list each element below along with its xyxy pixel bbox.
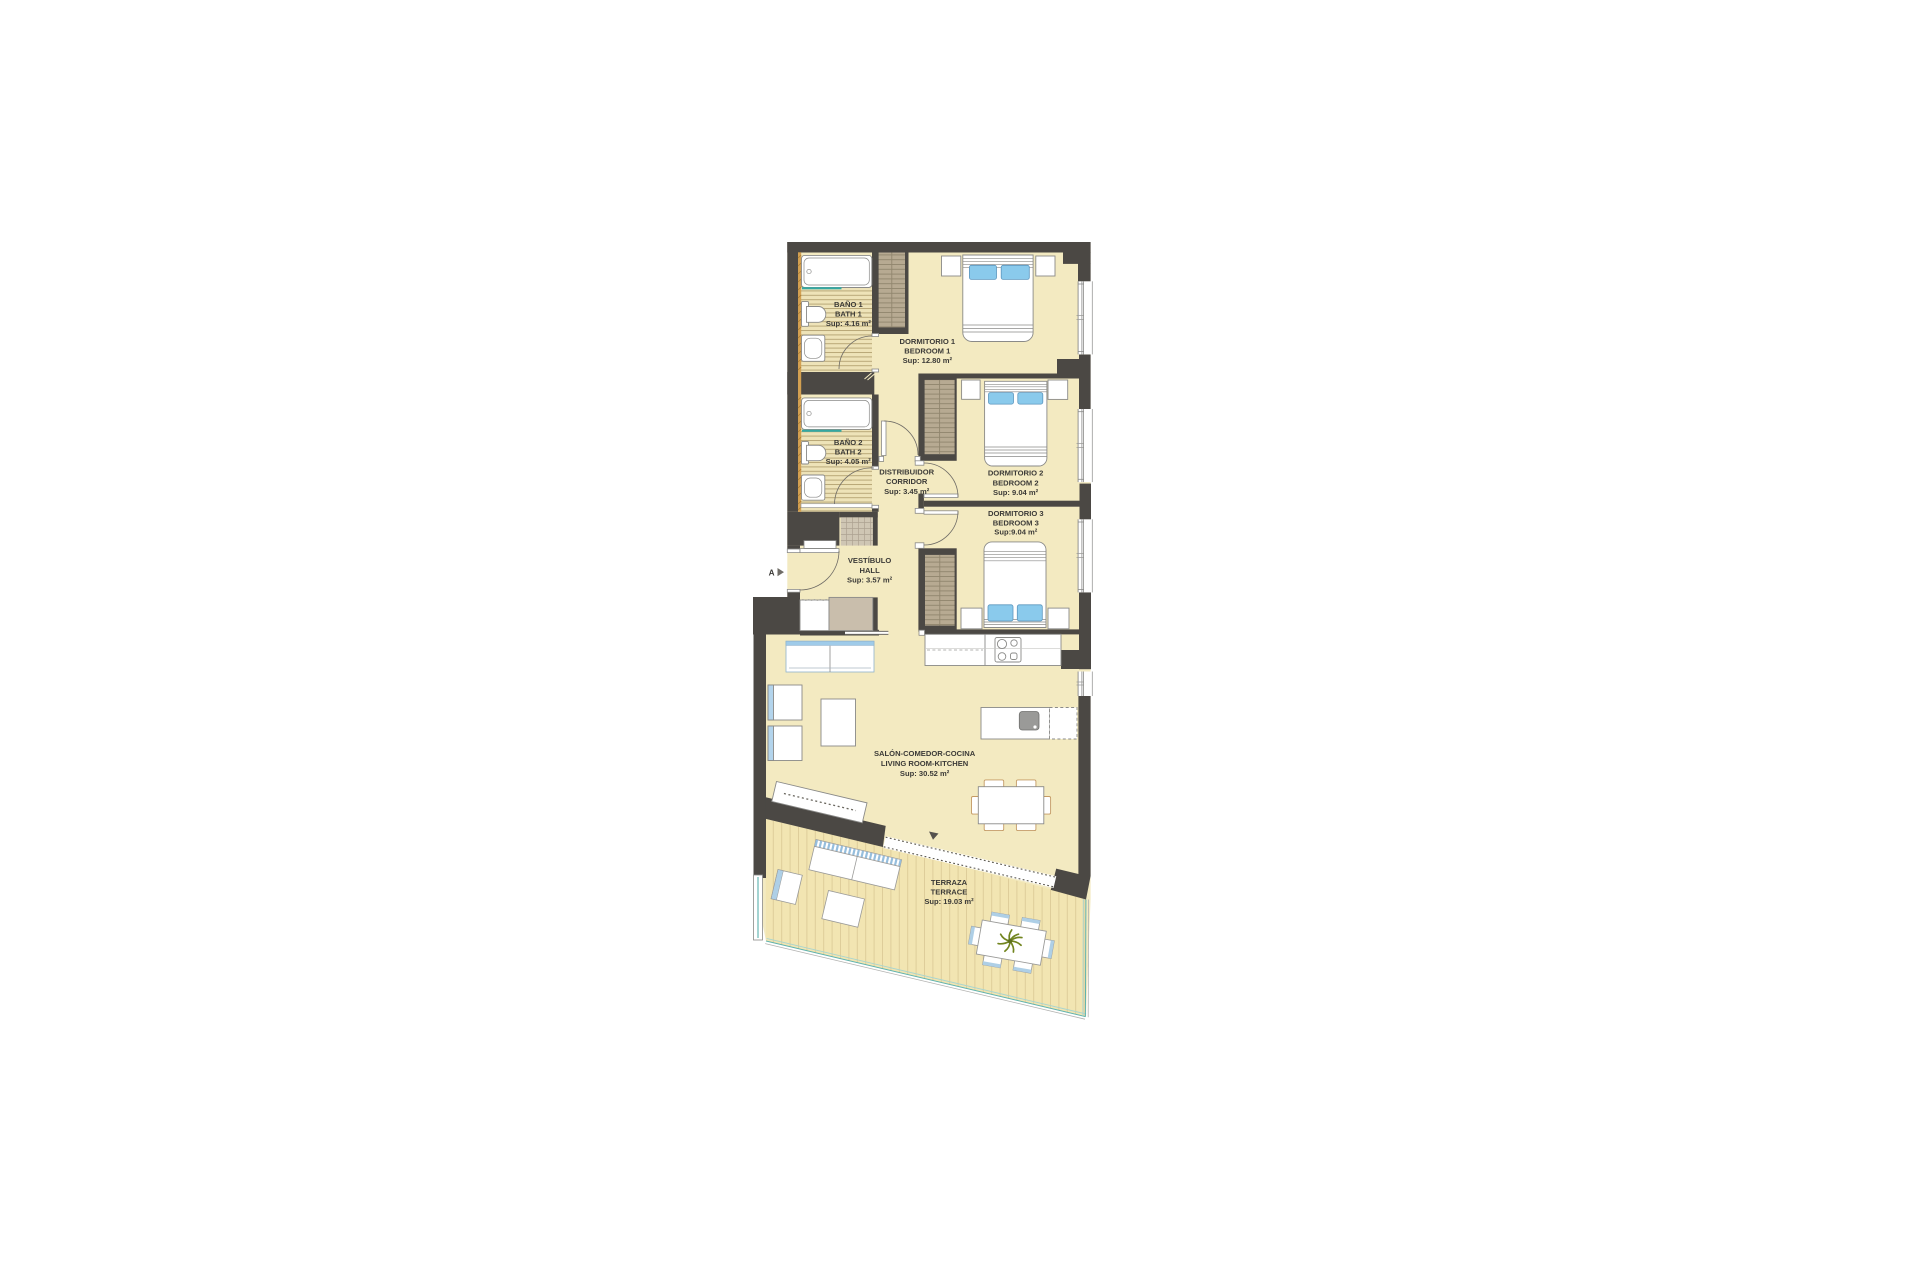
svg-text:BATH 1: BATH 1 <box>835 310 863 319</box>
svg-text:Sup:9.04 m²: Sup:9.04 m² <box>994 527 1038 536</box>
svg-text:Sup: 4.16 m²: Sup: 4.16 m² <box>826 319 872 328</box>
svg-text:Sup: 9.04 m²: Sup: 9.04 m² <box>993 488 1039 497</box>
svg-text:Sup: 3.57 m²: Sup: 3.57 m² <box>847 575 893 584</box>
svg-text:Sup: 12.80 m²: Sup: 12.80 m² <box>903 356 953 365</box>
svg-text:HALL: HALL <box>859 566 880 575</box>
svg-text:BEDROOM 2: BEDROOM 2 <box>993 478 1039 487</box>
svg-text:CORRIDOR: CORRIDOR <box>886 477 928 486</box>
svg-text:BATH 2: BATH 2 <box>835 448 862 457</box>
svg-text:TERRAZA: TERRAZA <box>931 878 968 887</box>
svg-text:BAÑO 2: BAÑO 2 <box>834 438 863 447</box>
svg-text:DORMITORIO 2: DORMITORIO 2 <box>988 469 1044 478</box>
svg-text:BEDROOM 1: BEDROOM 1 <box>904 346 951 355</box>
svg-text:DORMITORIO 3: DORMITORIO 3 <box>988 509 1044 518</box>
svg-text:Sup: 4.05 m²: Sup: 4.05 m² <box>826 457 872 466</box>
svg-text:LIVING ROOM-KITCHEN: LIVING ROOM-KITCHEN <box>881 759 968 768</box>
svg-text:BEDROOM 3: BEDROOM 3 <box>993 518 1039 527</box>
svg-text:Sup: 19.03 m²: Sup: 19.03 m² <box>924 897 974 906</box>
svg-text:Sup: 30.52 m²: Sup: 30.52 m² <box>900 769 950 778</box>
svg-text:SALÓN-COMEDOR-COCINA: SALÓN-COMEDOR-COCINA <box>874 749 976 758</box>
svg-text:DISTRIBUIDOR: DISTRIBUIDOR <box>879 468 934 477</box>
svg-text:VESTÍBULO: VESTÍBULO <box>848 556 892 565</box>
svg-text:A: A <box>769 569 775 578</box>
svg-text:DORMITORIO 1: DORMITORIO 1 <box>900 337 956 346</box>
svg-text:Sup: 3.45 m²: Sup: 3.45 m² <box>884 487 930 496</box>
svg-text:BAÑO 1: BAÑO 1 <box>834 300 863 309</box>
svg-text:TERRACE: TERRACE <box>931 887 968 896</box>
